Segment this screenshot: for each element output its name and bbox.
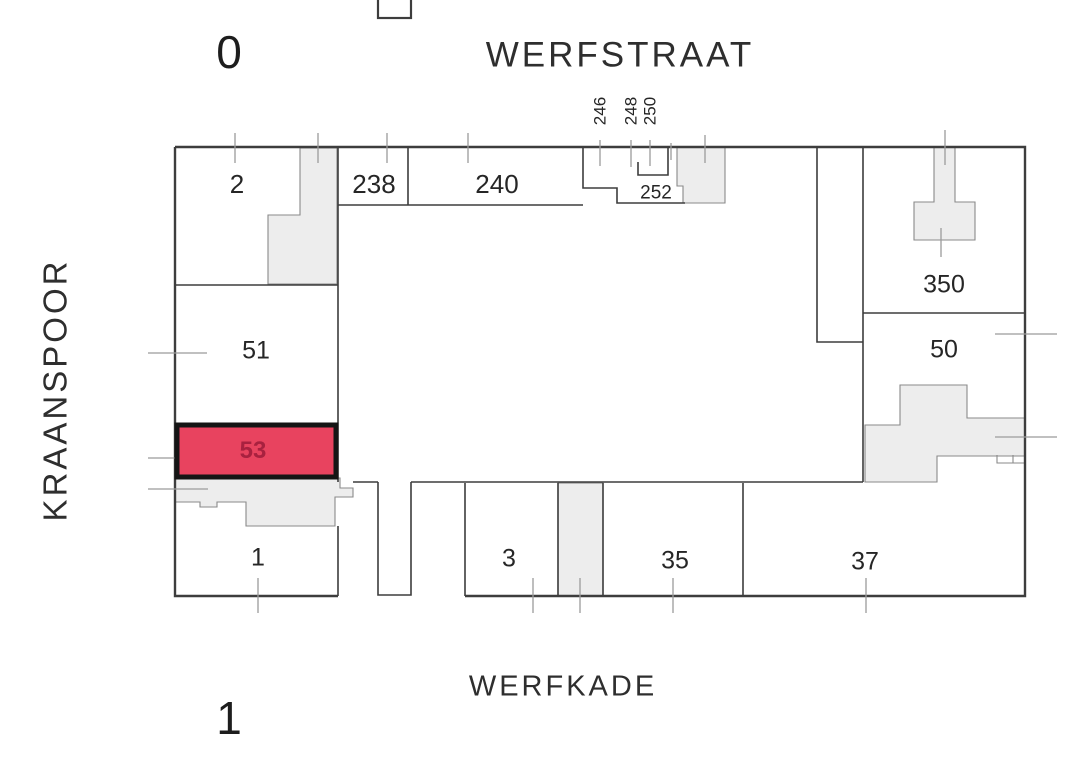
building-right-of-252 [677,147,725,203]
floor-label-1: 1 [216,695,242,741]
parcel-label-248: 248 [623,97,640,125]
building-below-53 [175,478,353,526]
street-label-werfkade: WERFKADE [469,673,657,702]
parcel-label-53: 53 [240,439,267,463]
parcel-label-238: 238 [352,171,395,197]
floorplan-canvas [0,0,1092,758]
parcel-label-1: 1 [251,546,265,571]
building-between-2-and-238 [268,148,337,284]
parcel-label-350: 350 [923,273,965,298]
parcel-label-252: 252 [640,184,672,203]
parcel-label-2: 2 [230,171,244,197]
street-label-kraanspoor: KRAANSPOOR [39,259,72,522]
parcel-label-250: 250 [642,97,659,125]
building-parcel-50 [865,385,1025,482]
parcel-label-37: 37 [851,550,879,575]
parcel-label-51: 51 [242,339,270,364]
cadastral-map: WERFSTRAAT WERFKADE KRAANSPOOR 0 1 2 238… [0,0,1092,758]
parcel-label-246: 246 [592,97,609,125]
street-label-werfstraat: WERFSTRAAT [486,38,755,73]
floor-label-0: 0 [216,29,242,75]
parcel-label-240: 240 [475,171,518,197]
parcel-label-3: 3 [502,547,516,572]
parcel-label-50: 50 [930,338,958,363]
parcel-label-35: 35 [661,549,689,574]
building-footprint-square [378,0,411,18]
